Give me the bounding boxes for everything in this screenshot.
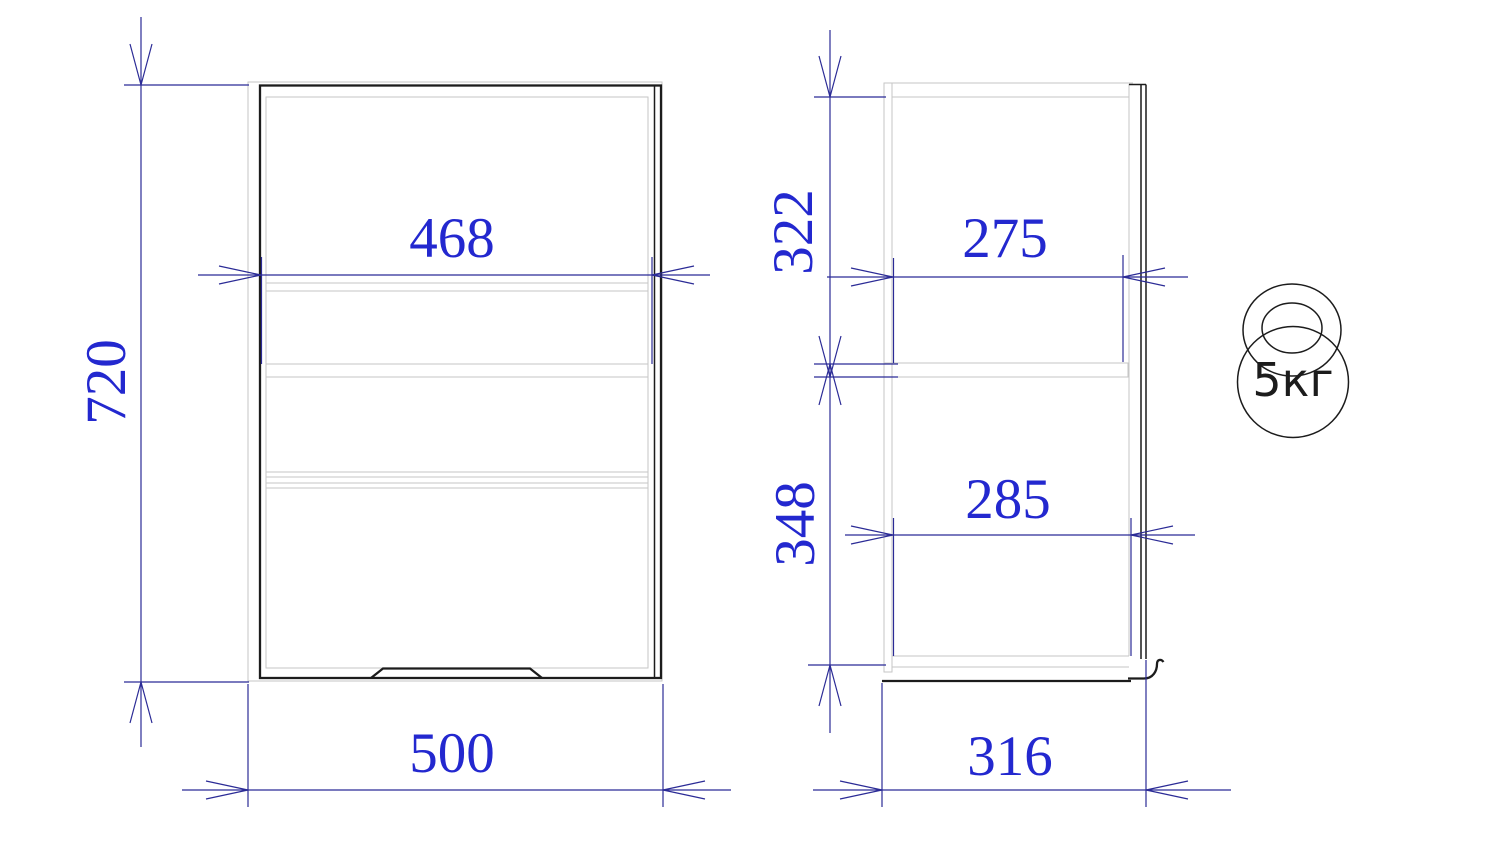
front-inner-panel bbox=[266, 97, 648, 668]
front-frame-outline bbox=[260, 86, 661, 679]
dim-label-side-lower-height: 348 bbox=[764, 481, 827, 567]
dimension-side-section-heights: 322 348 bbox=[762, 30, 898, 733]
dimension-front-overall-width: 500 bbox=[182, 684, 731, 807]
dim-label-front-inner-width: 468 bbox=[409, 207, 495, 270]
weight-capacity-label: 5кг bbox=[1252, 353, 1333, 407]
technical-drawing-page: 720 468 500 322 348 bbox=[0, 0, 1500, 844]
dim-label-upper-depth: 275 bbox=[962, 207, 1048, 270]
front-plinth-notch bbox=[371, 669, 542, 679]
side-view bbox=[882, 83, 1164, 681]
kettlebell-handle-inner bbox=[1262, 303, 1322, 353]
side-shelf-back-joint bbox=[884, 363, 892, 377]
kettlebell-icon: 5кг bbox=[1238, 284, 1349, 438]
dimension-side-lower-inner-depth: 285 bbox=[845, 468, 1195, 656]
dim-label-lower-depth: 285 bbox=[965, 468, 1051, 531]
dim-label-front-width: 500 bbox=[409, 722, 495, 785]
dim-label-side-depth: 316 bbox=[967, 725, 1053, 788]
dim-label-front-height: 720 bbox=[75, 339, 138, 425]
dimension-front-inner-width: 468 bbox=[198, 207, 710, 364]
front-outer-edge bbox=[248, 82, 662, 681]
dimension-side-upper-inner-depth: 275 bbox=[827, 207, 1188, 363]
side-shelf bbox=[892, 363, 1128, 377]
front-view bbox=[248, 82, 662, 681]
dim-label-side-upper-height: 322 bbox=[762, 189, 825, 275]
dimension-front-overall-height: 720 bbox=[75, 17, 249, 747]
drawing-canvas: 720 468 500 322 348 bbox=[0, 0, 1500, 844]
